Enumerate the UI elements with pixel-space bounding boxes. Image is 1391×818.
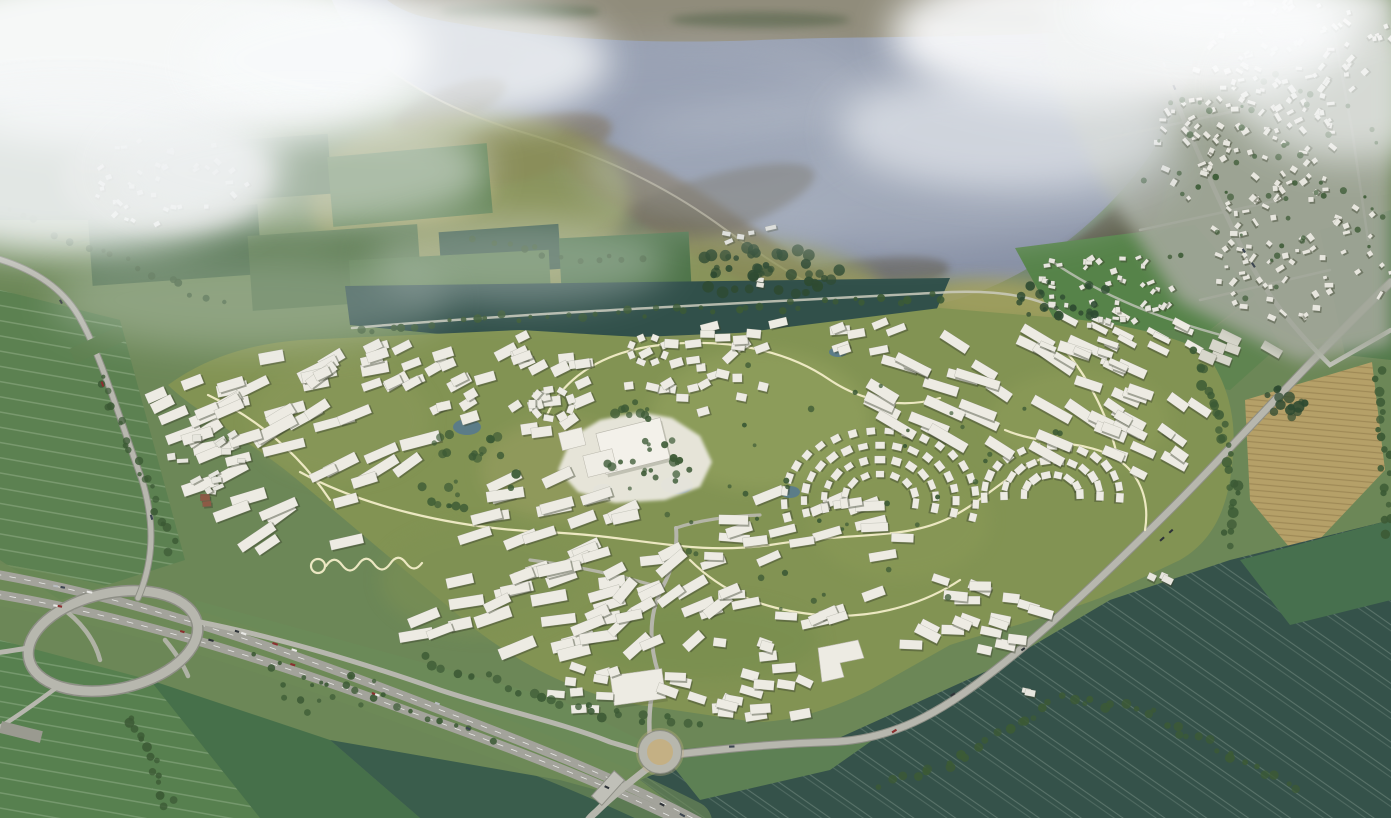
tree [642,438,649,445]
tree [1266,193,1272,199]
massing-building [772,662,796,673]
tree [1321,193,1327,199]
town-building [1112,316,1119,320]
tree [699,305,704,310]
tree [697,721,703,727]
tree [745,362,751,368]
tree [425,716,431,722]
town-building [1266,296,1274,302]
tree [626,412,632,418]
tree [393,703,401,711]
tree [107,402,115,410]
massing-building [861,522,888,532]
tree [726,265,733,272]
tree [811,598,817,604]
tree [817,518,822,523]
tree [1367,245,1370,248]
tree [597,713,607,723]
town-building [1282,252,1290,259]
tree [156,791,165,800]
tree [1174,722,1183,731]
massing-building [565,677,577,687]
tree [745,284,754,293]
tree [586,702,592,708]
tree [949,411,953,415]
massing-building [715,334,731,342]
tree [1239,124,1245,130]
massing-building [713,637,727,647]
tree [686,467,692,473]
tree [1242,295,1248,301]
tree [960,425,964,429]
tree [1371,207,1374,210]
tree [1221,529,1227,535]
tree [428,322,435,329]
tree [822,297,828,303]
town-building [238,458,246,462]
massing-building [574,358,590,369]
tree [1195,184,1201,190]
tree [310,683,314,687]
tree [1101,285,1110,294]
tree [1222,457,1232,467]
tree [163,523,172,532]
tree [649,468,654,473]
tree [628,487,632,491]
tree [473,314,482,323]
tree [593,312,598,317]
tree [268,664,276,672]
tree [164,548,173,557]
tree [497,310,505,318]
tree [445,430,454,439]
town-building [222,448,232,454]
tree [1270,408,1278,416]
tree [782,570,788,576]
town-building [1087,322,1092,328]
cloud-top-right [840,70,1180,190]
tree [486,671,492,677]
tree [408,709,413,714]
tree [1046,280,1051,285]
tree [152,496,159,503]
tree [981,737,988,744]
massing-house [543,386,554,394]
tree [281,695,287,701]
tree [1183,734,1189,740]
massing-house [801,496,807,505]
tree [170,796,178,804]
tree [422,652,430,660]
tree [684,719,693,728]
tree [1377,433,1386,442]
tree [935,495,940,500]
tree [1287,781,1292,786]
tree [1228,507,1239,518]
tree [1340,187,1347,194]
massing-building [685,339,702,349]
tree [1214,748,1219,753]
tree [490,738,497,745]
tree [623,306,631,314]
tree [853,297,857,301]
tree [1274,285,1279,290]
town-building [200,495,210,501]
tree [667,718,676,727]
tree [804,277,814,287]
massing-house [1053,471,1063,480]
tree [469,453,477,461]
tree [280,682,286,688]
tree [945,594,952,601]
massing-building [1002,592,1020,603]
tree [278,661,282,665]
tree [1292,785,1300,793]
town-building [167,453,176,461]
tree [358,702,363,707]
tree [879,384,883,388]
tree [1381,530,1390,539]
tree [1274,253,1280,259]
tree [319,681,323,685]
tree [1187,131,1194,138]
massing-house [1116,493,1124,503]
tree [888,775,897,784]
tree [1378,366,1387,375]
scene-canvas [0,0,1391,818]
tree [1086,696,1093,703]
tree [150,508,158,516]
tree [1035,289,1045,299]
tree [452,502,461,511]
massing-building [732,374,742,383]
tree [1228,451,1234,457]
massing-building [624,381,634,390]
tree [741,242,753,254]
tree [930,291,936,297]
tree [1293,407,1302,416]
tree [1212,174,1219,181]
tree [436,665,444,673]
tree [1210,401,1219,410]
tree [884,501,890,507]
tree [101,375,105,379]
tree [1215,426,1223,434]
town-building [1268,284,1273,289]
fog-bank [110,110,490,230]
tree [702,281,714,293]
town-building [1295,249,1299,253]
tree [754,264,763,273]
tree [1207,392,1215,400]
tree [777,250,788,261]
tree [822,593,826,597]
massing-building [750,703,771,714]
tree [454,723,458,727]
town-building [1270,214,1277,221]
tree [755,517,759,521]
tree [1355,227,1361,233]
town-building [1114,300,1119,305]
tree [672,470,680,478]
massing-building [704,552,723,561]
tree [147,753,155,761]
aerial-masterplan-rendering [0,0,1391,818]
tree [372,679,376,683]
tree [906,429,910,433]
tree [779,607,783,611]
tree [615,711,622,718]
tree [1054,311,1064,321]
massing-building [733,335,748,345]
town-building [211,476,221,483]
tree [1151,708,1156,713]
tree [304,709,311,716]
tree [317,699,321,703]
tree [135,457,143,465]
small-roundabout [643,735,677,769]
massing-building [665,672,687,681]
tree [653,305,659,311]
tree [756,303,764,311]
town-building [1234,210,1238,216]
tree [618,460,623,465]
tree [156,773,162,779]
tree [1254,764,1260,770]
town-building [1246,244,1252,249]
massing-building [753,679,774,690]
tree [434,501,441,508]
tree [154,758,160,764]
tree [1106,700,1114,708]
massing-house [981,492,988,503]
tree [763,262,770,269]
tree [1059,692,1066,699]
tree [1284,392,1295,403]
massing-building [899,639,922,649]
tree [791,289,801,299]
tree [845,523,849,527]
tree [547,695,556,704]
massing-house [971,486,979,496]
tree [1168,255,1173,260]
tree [710,309,715,314]
town-building [1308,197,1314,202]
tree [469,673,475,679]
tree [826,274,837,285]
tree [1122,699,1132,709]
tree [432,440,437,445]
town-building [1216,279,1222,285]
town-building [1324,283,1333,288]
tree [160,803,168,811]
tree [808,406,815,413]
massing-house [821,492,828,501]
tree [639,710,648,719]
town-building [1115,307,1120,313]
tree [1216,435,1225,444]
tree [736,306,743,313]
massing-house [912,498,920,509]
tree [444,483,453,492]
town-building [1056,263,1063,267]
tree [603,460,611,468]
town-building [1098,316,1103,322]
tree [632,399,638,405]
tree [1206,735,1215,744]
tree [118,421,123,426]
tree [641,471,647,477]
tree [1222,421,1229,428]
tree [1020,297,1025,302]
massing-house [1115,482,1123,492]
tree [324,683,328,687]
massing-house [981,481,989,491]
tree [787,298,794,305]
tree [914,772,923,781]
tree [645,407,649,411]
tree [731,285,739,293]
tree [1319,181,1323,185]
tree [578,313,587,322]
tree [1380,409,1386,415]
tree [1070,304,1077,311]
tree [1053,429,1059,435]
tree [642,314,646,318]
tree [974,743,983,752]
tree [1091,301,1098,308]
tree [1265,392,1271,398]
town-building [1322,187,1329,191]
tree [1214,410,1224,420]
tree [1227,194,1234,201]
tree [903,444,907,448]
tree [454,480,458,484]
tree [1283,196,1288,201]
tree [621,404,629,412]
tree [1091,310,1099,318]
tree [505,685,512,692]
massing-house [840,498,849,509]
tree [937,296,945,304]
tree [1314,190,1319,195]
town-building [1312,305,1320,312]
massing-house [950,484,959,494]
tree [330,694,336,700]
tree [1233,480,1244,491]
tree [1038,703,1047,712]
tree [1215,230,1220,235]
tree [138,736,144,742]
town-building [1049,294,1054,299]
town-building [1051,281,1055,285]
tree [743,491,749,497]
tree [1269,770,1278,779]
tree [693,551,698,556]
tree [1022,407,1026,411]
town-building [1119,256,1126,260]
tree [1164,722,1171,729]
tree [803,249,815,261]
tree [1380,214,1386,220]
tree [728,484,732,488]
tree [347,672,355,680]
town-building [1239,304,1248,310]
tree [1286,216,1291,221]
tree [743,305,749,311]
tree [1197,365,1205,373]
tree [1043,307,1047,311]
tree [1225,466,1233,474]
car [729,745,734,747]
tree [1226,484,1233,491]
tree [142,742,152,752]
tree [545,315,549,319]
tree [1175,731,1183,739]
tree [653,475,659,481]
tree [1376,398,1385,407]
tree [301,675,306,680]
tree [508,485,514,491]
tree [711,268,721,278]
tree [1235,490,1240,495]
tree [436,718,443,725]
tree [497,452,504,459]
tree [630,459,636,465]
tree [742,423,747,428]
tree [639,719,645,725]
tree [853,390,858,395]
massing-building [891,533,914,543]
tree [1375,427,1381,433]
tree [1288,404,1295,411]
tree [1225,753,1235,763]
tree [381,692,386,697]
massing-building [719,515,749,525]
tree [661,441,668,448]
tree [1020,716,1029,725]
tree [1301,235,1306,240]
tree [1275,154,1282,161]
tree [515,690,522,697]
tree [1279,243,1284,248]
tree [1054,306,1059,311]
tree [720,250,731,261]
town-building [177,458,189,463]
massing-house [875,456,886,464]
tree [105,388,112,395]
tree [1292,180,1298,186]
tree [172,538,178,544]
massing-house [781,499,788,509]
tree [1225,191,1228,194]
tree [1082,701,1087,706]
town-building [1117,275,1123,281]
tree [733,255,739,261]
tree [511,469,521,479]
tree [915,522,920,527]
tree [447,318,451,322]
massing-house [972,500,979,509]
tree [786,269,797,280]
tree [1178,253,1183,258]
massing-building [596,692,614,701]
tree [1060,294,1065,299]
tree [785,485,789,489]
massing-building [1007,634,1027,646]
tree [528,315,532,319]
town-building [756,282,764,288]
